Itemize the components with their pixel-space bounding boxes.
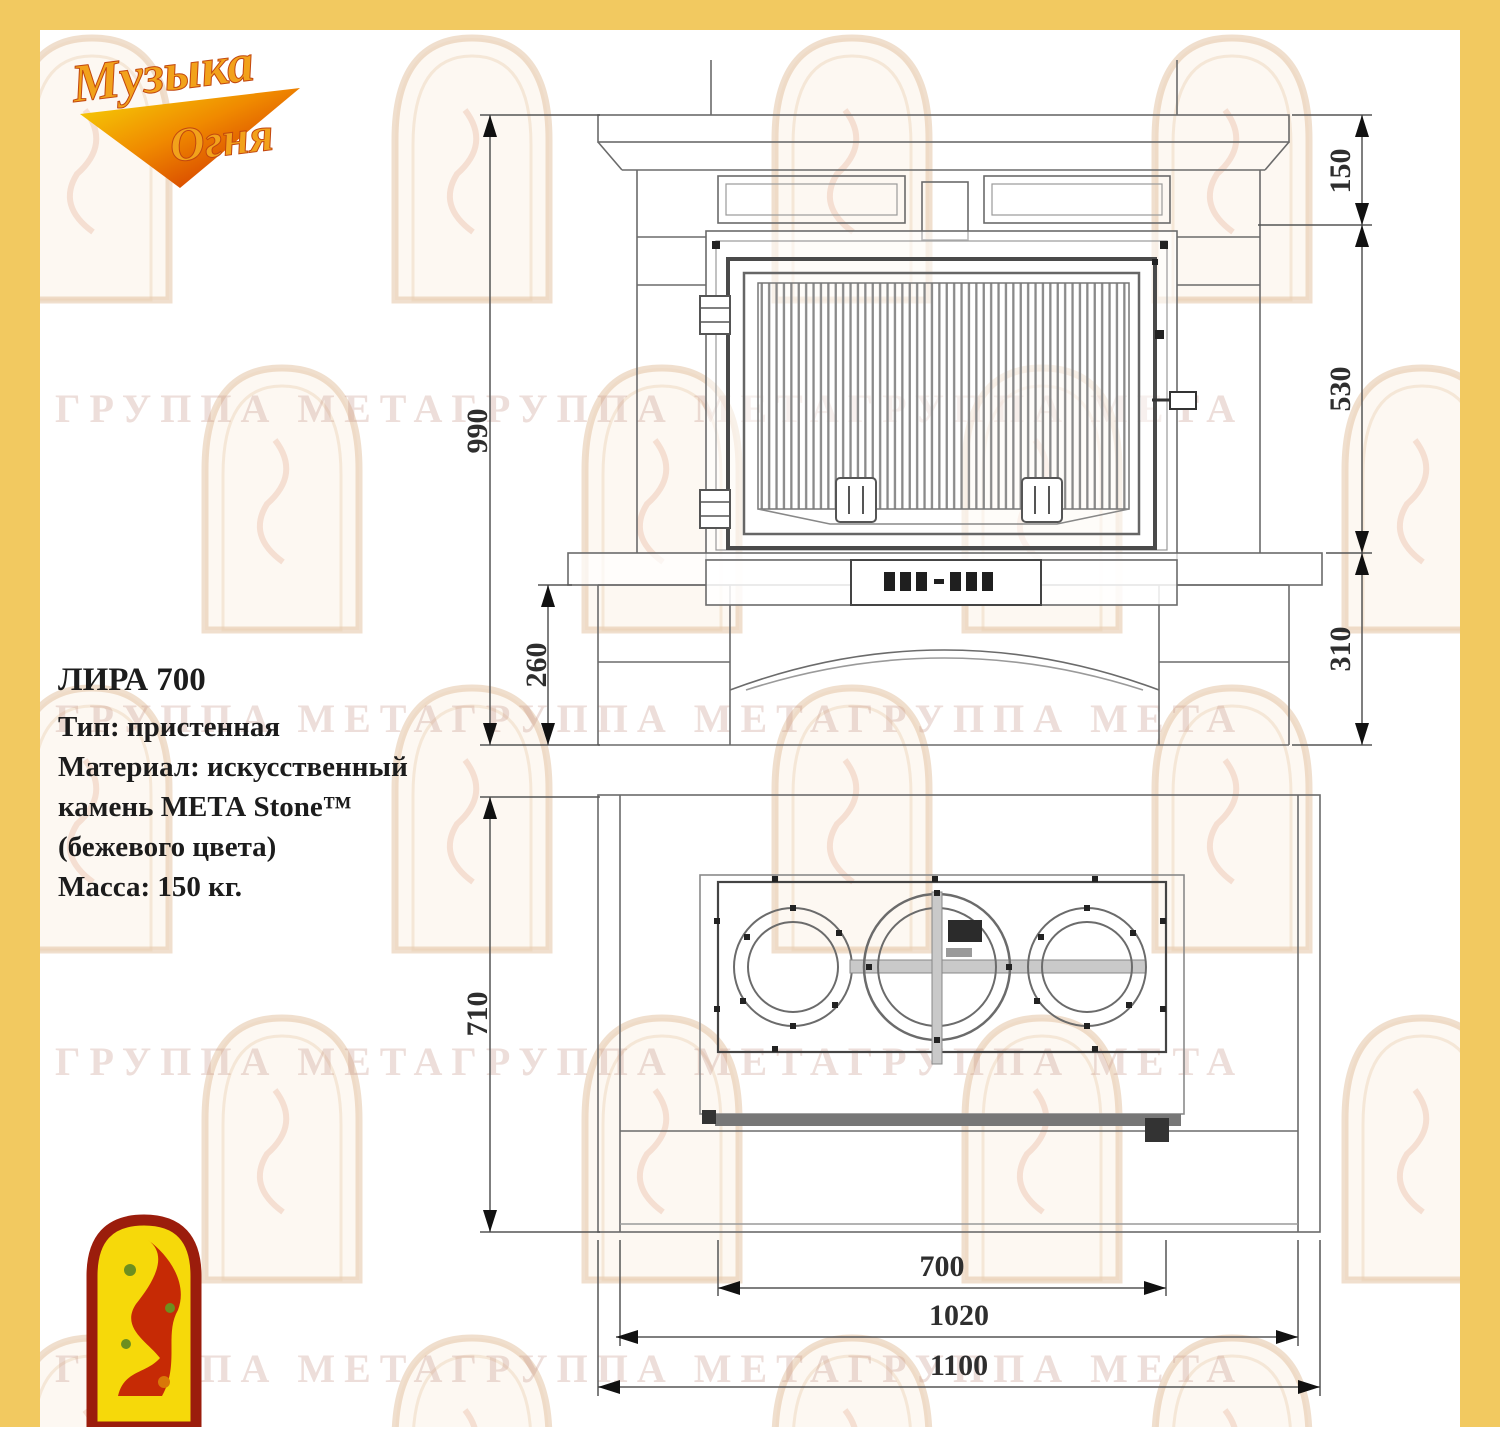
dim-insert-width: 700 (920, 1250, 965, 1283)
dim-firebox-height: 530 (1324, 367, 1357, 412)
front-view-drawing (568, 60, 1322, 745)
flue-circle-center (864, 890, 1012, 1064)
dim-plinth-height: 310 (1324, 627, 1357, 672)
flue-circle-left (734, 905, 852, 1029)
top-view-drawing (598, 795, 1320, 1232)
dim-inner-width: 1020 (929, 1299, 989, 1332)
door-hinge-top (700, 296, 730, 334)
product-spec-line: Тип: пристенная (58, 707, 528, 747)
product-spec-line: камень МЕТА Stone™ (58, 787, 528, 827)
frame-left-bar (0, 0, 40, 1427)
company-emblem (86, 1212, 202, 1427)
flue-lines (711, 60, 1177, 115)
door-hinge-bottom (700, 490, 730, 528)
product-spec-line: Материал: искусственный (58, 747, 528, 787)
dim-shelf-height: 150 (1324, 149, 1357, 194)
ash-panel (706, 560, 1177, 605)
base-arch (730, 650, 1159, 690)
door-grill (758, 283, 1129, 524)
product-info: ЛИРА 700 Тип: пристенная Материал: искус… (58, 662, 528, 907)
brand-word-2: Огня (167, 108, 276, 173)
damper-marker (946, 920, 982, 957)
product-spec-line: (бежевого цвета) (58, 827, 528, 867)
product-title: ЛИРА 700 (58, 662, 528, 699)
dim-height-total: 990 (461, 409, 494, 454)
dim-total-width: 1100 (930, 1349, 988, 1382)
product-spec-line: Масса: 150 кг. (58, 867, 528, 907)
frame-top-bar (0, 0, 1500, 30)
frame-right-bar (1460, 0, 1500, 1427)
brand-logo: Музыка Огня (52, 36, 352, 196)
support-rail (850, 960, 1146, 973)
base-plinth (598, 585, 1289, 745)
front-fender-band (702, 1110, 1181, 1142)
top-view-outline (598, 795, 1320, 1232)
firebox-door (700, 231, 1196, 560)
dim-depth: 710 (461, 992, 494, 1037)
mantel-shelf (598, 115, 1289, 170)
